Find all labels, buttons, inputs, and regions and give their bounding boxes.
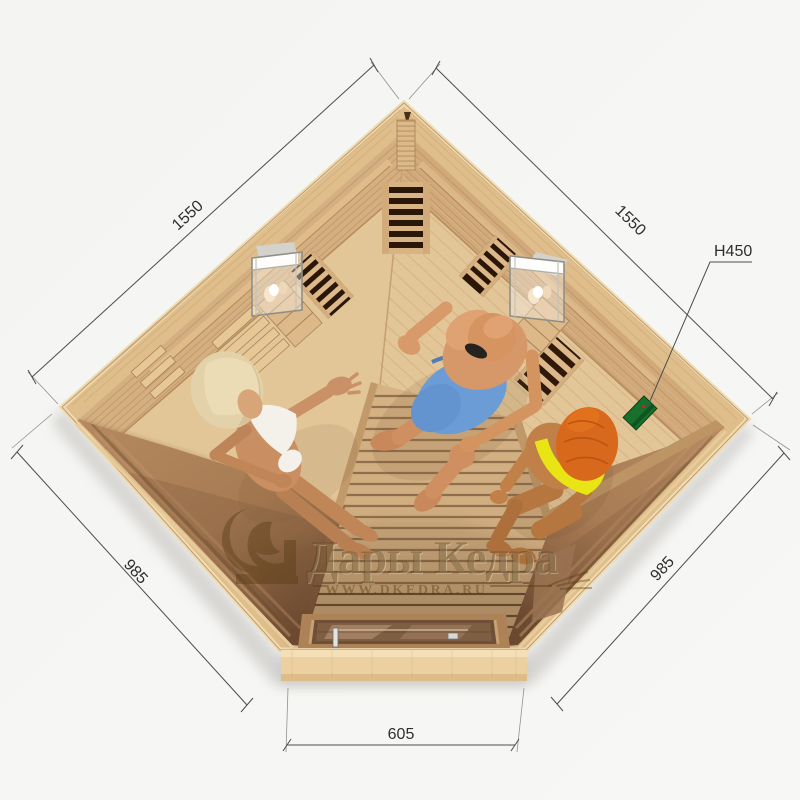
svg-text:605: 605	[388, 726, 415, 743]
svg-text:WWW.DKEDRA.RU: WWW.DKEDRA.RU	[325, 583, 487, 598]
svg-text:H450: H450	[714, 243, 752, 260]
svg-text:Дары Кедра: Дары Кедра	[306, 532, 558, 584]
